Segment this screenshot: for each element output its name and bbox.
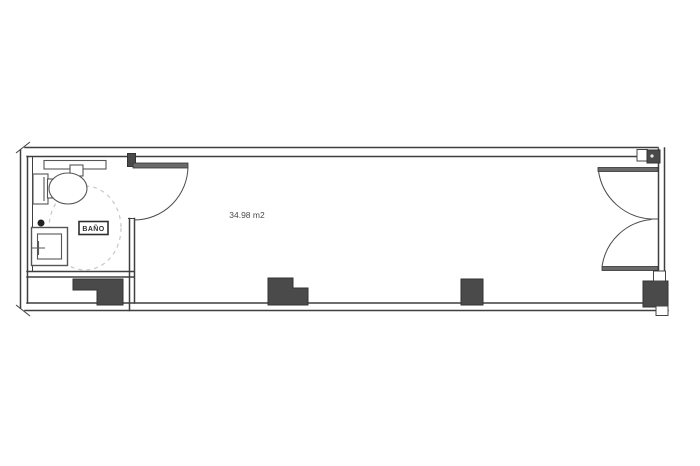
bathroom-door-leaf <box>133 163 188 168</box>
top-right-corner-detail <box>637 150 660 164</box>
structural-column-icon <box>268 278 308 305</box>
bathroom-door-swing-arc <box>134 167 188 221</box>
entrance-door-swing-arc-bottom <box>602 220 652 267</box>
floor-plan-canvas: BAÑO 34.98 m2 <box>0 0 700 466</box>
bathroom-label-box: BAÑO <box>79 222 108 235</box>
corner-column-mark <box>650 154 653 157</box>
bathroom-fixtures: BAÑO <box>31 161 108 266</box>
toilet-bowl <box>49 173 87 204</box>
wall-junction-box <box>656 306 668 316</box>
entrance-door-leaf-top <box>598 168 658 172</box>
sink-basin <box>38 234 62 259</box>
toilet-icon <box>33 173 87 204</box>
sink-icon <box>31 228 68 266</box>
double-entrance-door-icon <box>598 168 659 271</box>
drain-dot-icon <box>38 220 45 227</box>
structural-column-icon <box>643 281 668 307</box>
structural-column-icon <box>73 279 123 305</box>
structural-column-icon <box>461 279 483 305</box>
area-label: 34.98 m2 <box>229 210 265 220</box>
structural-columns <box>73 271 668 316</box>
entrance-door-swing-arc-top <box>599 171 652 219</box>
floor-plan-drawing: BAÑO 34.98 m2 <box>0 0 700 466</box>
bathroom-label: BAÑO <box>82 224 104 233</box>
wall-junction-box <box>654 271 666 281</box>
entrance-door-leaf-bottom <box>602 267 658 271</box>
bathroom-door-icon <box>133 163 188 220</box>
wall-junction-box <box>637 150 648 162</box>
toilet-tank <box>33 174 48 204</box>
